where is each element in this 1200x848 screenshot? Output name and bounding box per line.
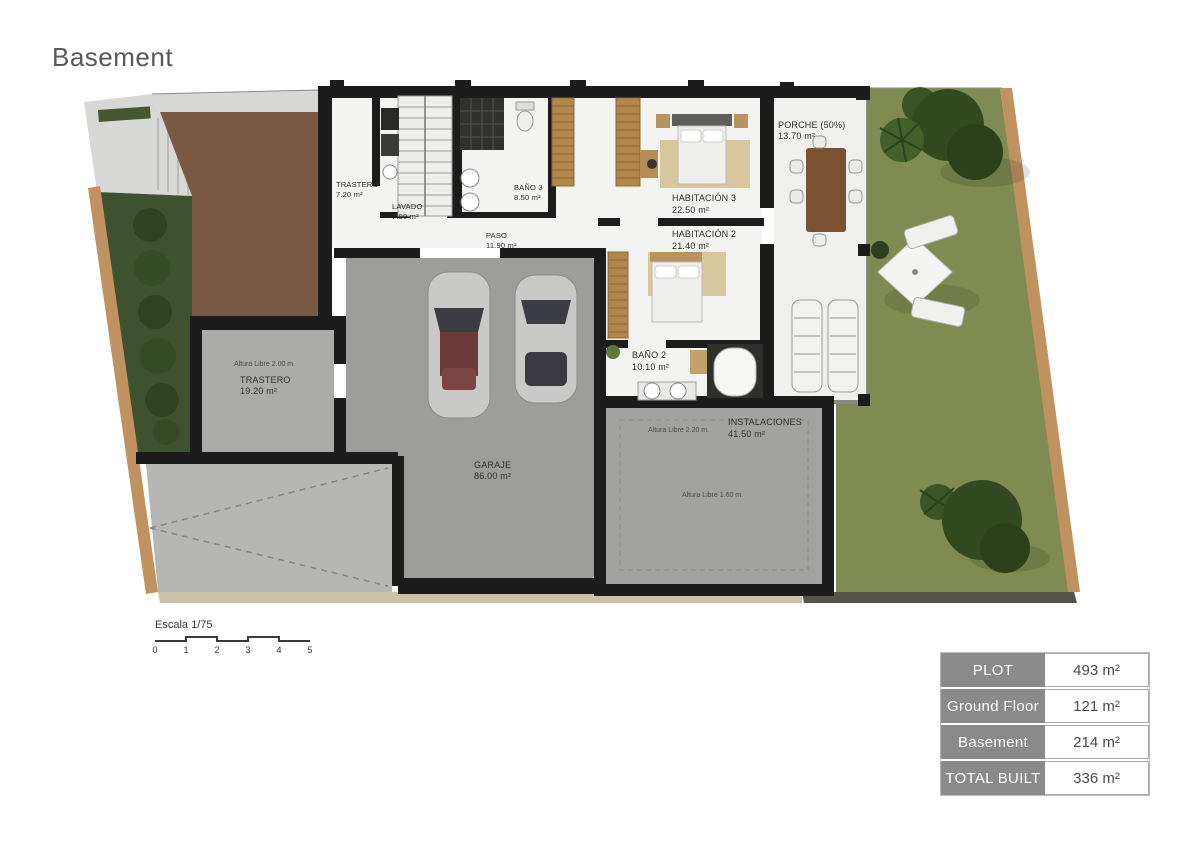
table-row-basement: Basement 214 m² <box>941 725 1149 759</box>
label-bano3-name: BAÑO 3 <box>514 183 543 192</box>
table-row-total-built: TOTAL BUILT 336 m² <box>941 761 1149 795</box>
scale-bar: Escala 1/75 0 1 2 3 4 5 <box>152 619 312 655</box>
scale-label: Escala 1/75 <box>155 619 212 631</box>
table-label-basement: Basement <box>941 725 1045 759</box>
label-lavado-area: 7.00 m² <box>392 212 419 221</box>
label-porche-name: PORCHE (50%) <box>778 120 845 130</box>
table-value-basement: 214 m² <box>1045 725 1149 759</box>
table-label-plot: PLOT <box>941 653 1045 687</box>
label-garaje-name: GARAJE <box>474 460 511 470</box>
note-instalaciones: Altura Libre 2.20 m. <box>648 427 709 434</box>
note-trastero2: Altura Libre 2.00 m. <box>234 361 295 368</box>
label-trastero2-name: TRASTERO <box>240 375 291 385</box>
label-habitacion2-name: HABITACIÓN 2 <box>672 229 736 239</box>
label-garaje-area: 86.00 m² <box>474 471 511 481</box>
table-row-plot: PLOT 493 m² <box>941 653 1149 687</box>
label-habitacion2-area: 21.40 m² <box>672 241 709 251</box>
sink-icon <box>644 383 660 399</box>
wood-mat-icon <box>690 350 708 374</box>
label-lavado-name: LAVADO <box>392 202 423 211</box>
scale-tick-3: 3 <box>245 645 250 655</box>
plant-icon <box>606 345 620 359</box>
shower-icon <box>460 98 504 150</box>
washer-dryer-icon <box>381 108 399 179</box>
driveway-ramp <box>146 464 392 592</box>
scale-tick-1: 1 <box>183 645 188 655</box>
table-value-plot: 493 m² <box>1045 653 1149 687</box>
scale-tick-5: 5 <box>307 645 312 655</box>
car-icon-2 <box>515 275 577 403</box>
scale-tick-4: 4 <box>276 645 281 655</box>
table-value-total-built: 336 m² <box>1045 761 1149 795</box>
table-label-total-built: TOTAL BUILT <box>941 761 1045 795</box>
label-porche-area: 13.70 m² <box>778 131 815 141</box>
label-trastero1-name: TRASTERO <box>336 180 378 189</box>
laundry-sink-icon <box>383 165 397 179</box>
label-paso-area: 11.90 m² <box>486 241 517 250</box>
car-icon <box>428 272 490 418</box>
table-row-ground-floor: Ground Floor 121 m² <box>941 689 1149 723</box>
bathtub-icon <box>714 348 756 396</box>
label-bano2-area: 10.10 m² <box>632 362 669 372</box>
floor-plan-page: Basement <box>0 0 1200 848</box>
scale-tick-0: 0 <box>152 645 157 655</box>
sink-icon-2 <box>670 383 686 399</box>
label-instalaciones-name: INSTALACIONES <box>728 417 802 427</box>
label-trastero1-area: 7.20 m² <box>336 190 363 199</box>
table-value-ground-floor: 121 m² <box>1045 689 1149 723</box>
scale-tick-2: 2 <box>214 645 219 655</box>
label-paso-name: PASO <box>486 231 507 240</box>
stairs-icon <box>398 96 452 216</box>
label-trastero2-area: 19.20 m² <box>240 386 277 396</box>
label-instalaciones-area: 41.50 m² <box>728 429 765 439</box>
curb-bottom-right <box>802 592 1077 603</box>
label-habitacion3-name: HABITACIÓN 3 <box>672 193 736 203</box>
note-garaje: Altura Libre 1.60 m. <box>682 492 743 499</box>
label-habitacion3-area: 22.50 m² <box>672 205 709 215</box>
shrub-icon <box>871 241 889 259</box>
garage-door <box>392 456 404 586</box>
label-bano2-name: BAÑO 2 <box>632 350 666 360</box>
table-label-ground-floor: Ground Floor <box>941 689 1045 723</box>
toilet-icon <box>516 102 534 131</box>
wardrobe2-icon <box>608 252 628 338</box>
summary-table: PLOT 493 m² Ground Floor 121 m² Basement… <box>940 652 1150 796</box>
label-bano3-area: 8.50 m² <box>514 193 541 202</box>
